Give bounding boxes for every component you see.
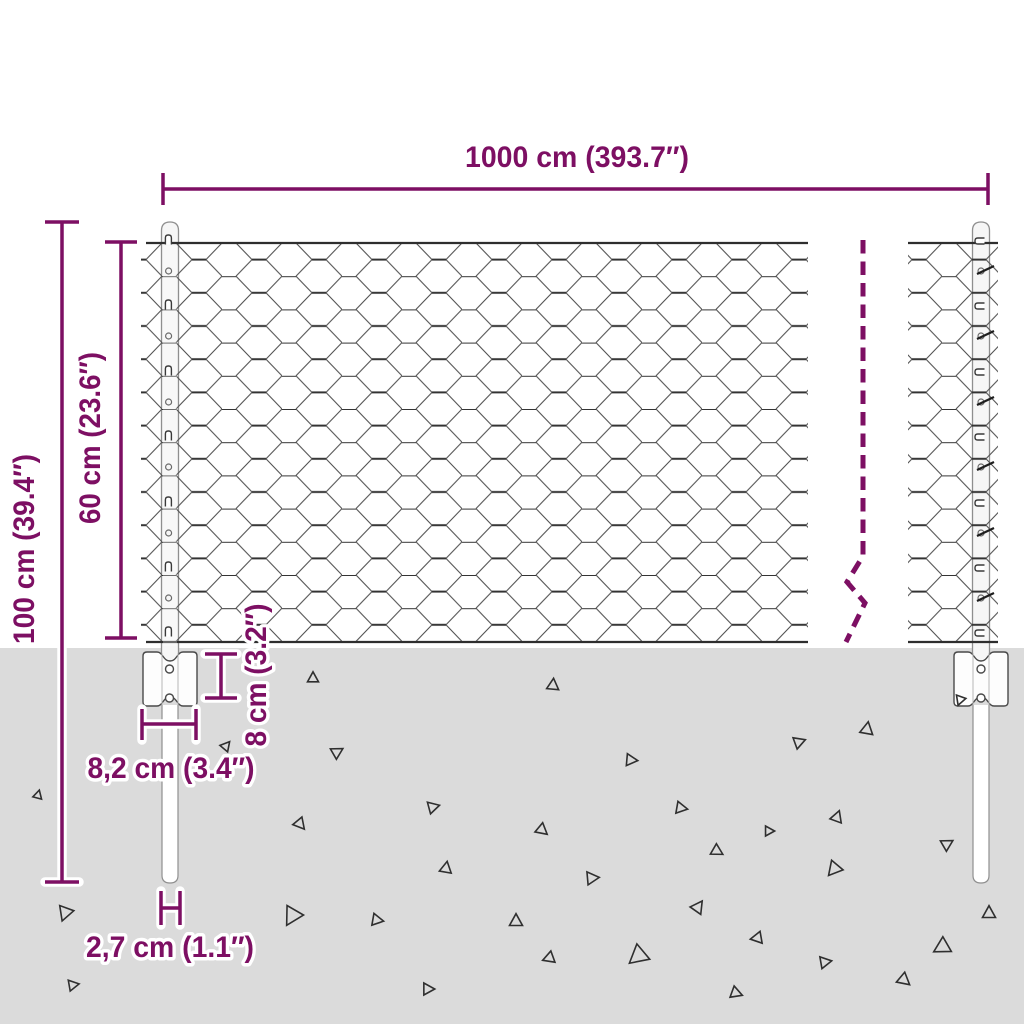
svg-text:60 cm (23.6″): 60 cm (23.6″) xyxy=(74,352,107,524)
svg-text:8 cm (3.2″): 8 cm (3.2″) xyxy=(240,604,273,747)
svg-text:1000 cm (393.7″): 1000 cm (393.7″) xyxy=(465,141,689,174)
svg-text:2,7 cm (1.1″): 2,7 cm (1.1″) xyxy=(86,931,254,964)
svg-text:8,2 cm (3.4″): 8,2 cm (3.4″) xyxy=(88,752,255,785)
svg-text:100 cm (39.4″): 100 cm (39.4″) xyxy=(8,454,41,644)
